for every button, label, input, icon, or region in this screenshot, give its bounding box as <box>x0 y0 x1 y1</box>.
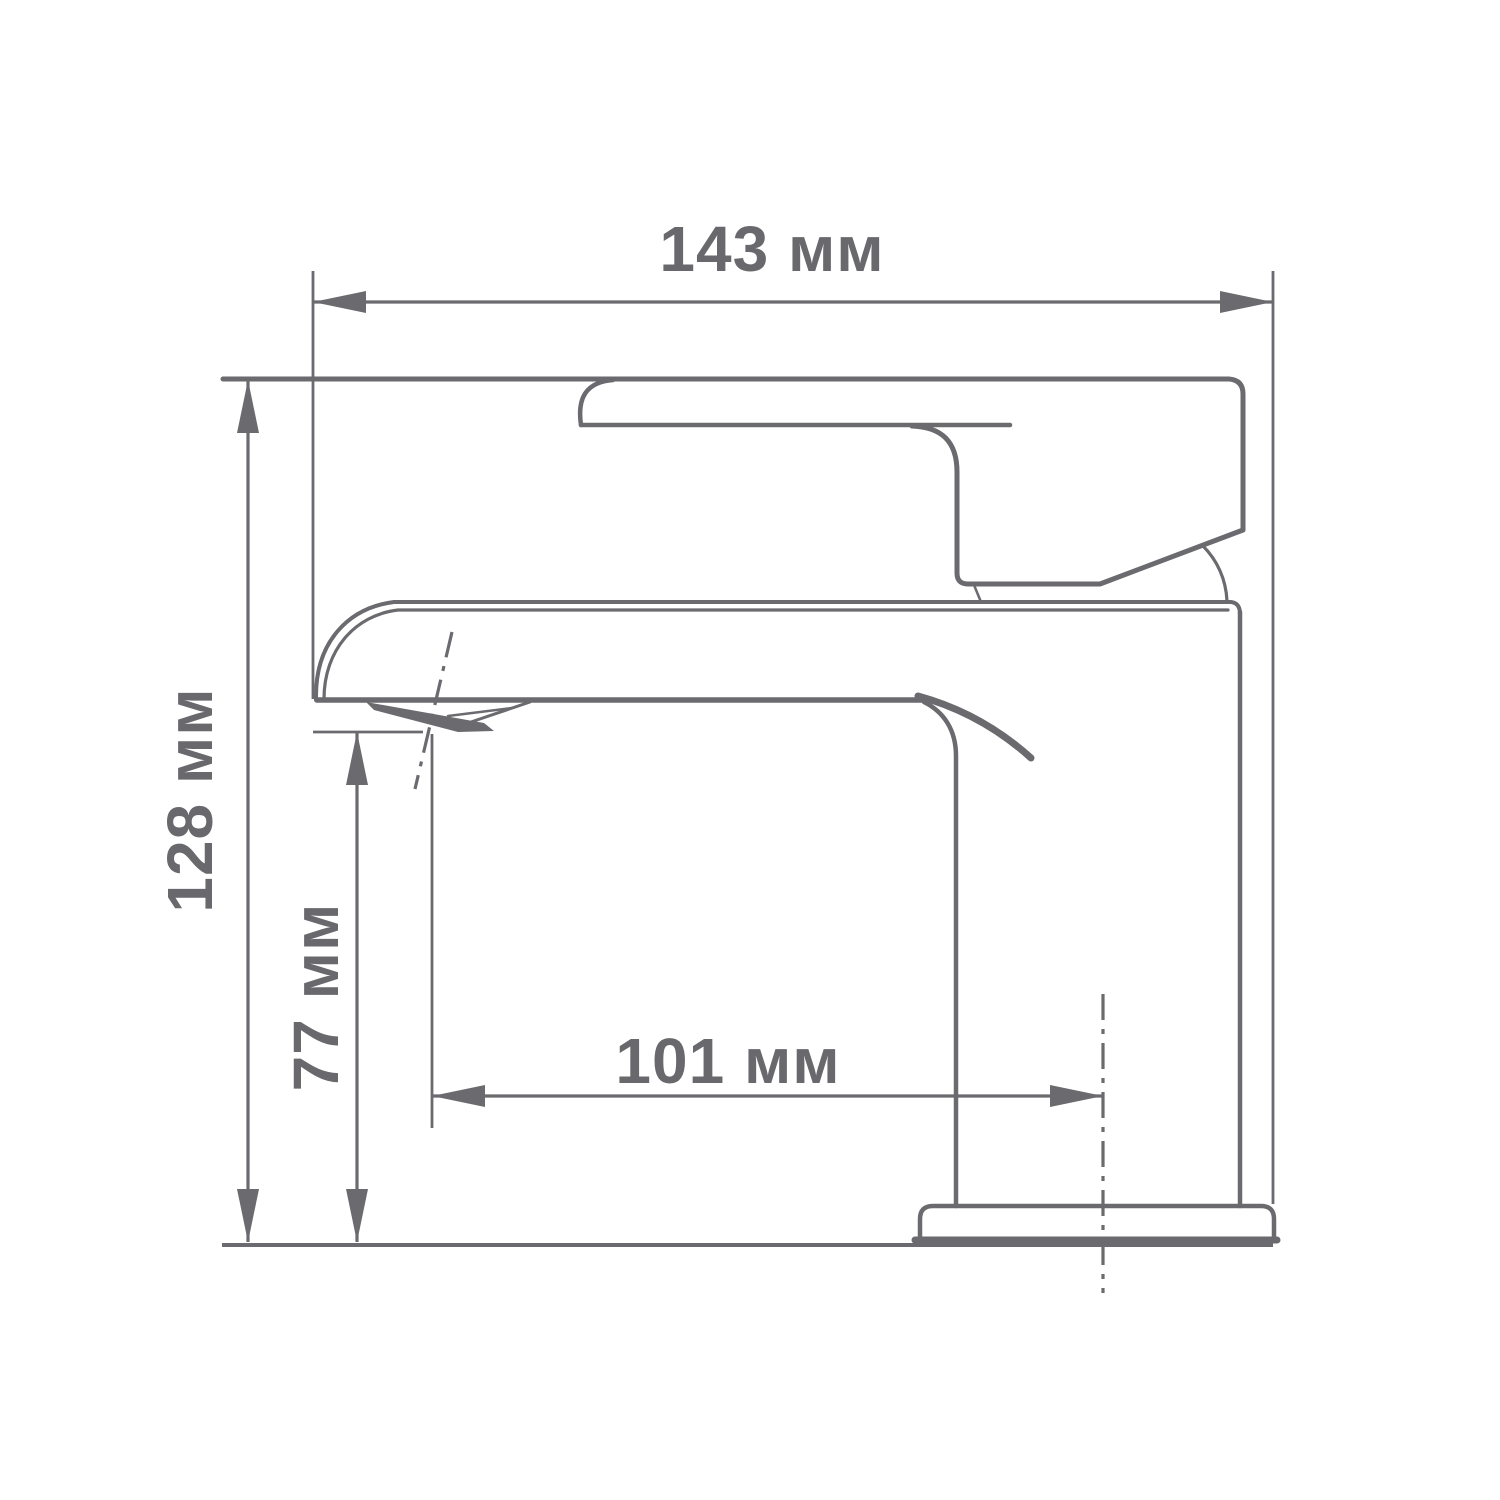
cartridge-dome-arc <box>1203 546 1227 601</box>
faucet-dimension-drawing: 143 мм 128 мм 77 мм 101 мм <box>0 0 1500 1500</box>
dimension-label-77: 77 мм <box>280 903 352 1092</box>
handle-nose-curve <box>580 380 613 425</box>
arrowhead-up <box>346 732 368 785</box>
arrowhead-down <box>346 1189 368 1242</box>
dimension-label-143: 143 мм <box>659 213 884 285</box>
neck-seam-line <box>974 585 981 602</box>
arrowhead-right <box>1220 291 1273 313</box>
arrowhead-left <box>432 1085 485 1107</box>
drawing-canvas: 143 мм 128 мм 77 мм 101 мм <box>0 0 1500 1500</box>
dimension-overall-height: 128 мм <box>154 380 259 1242</box>
arrowhead-left <box>313 291 366 313</box>
handle-block-outline <box>223 379 1243 584</box>
spout-deck-inner <box>324 610 1228 699</box>
dimension-spout-reach: 101 мм <box>432 734 1103 1128</box>
body-left-edge <box>924 702 956 1206</box>
arrowhead-right <box>1050 1085 1103 1107</box>
aerator-centerline <box>415 632 452 789</box>
faucet-outline <box>222 379 1277 1293</box>
spout-deck-outer <box>316 602 1240 700</box>
base-plate-outline <box>920 1206 1274 1241</box>
arrowhead-down <box>237 1189 259 1242</box>
body-front-swoosh <box>918 696 1031 758</box>
arrowhead-up <box>237 380 259 433</box>
dimension-label-128: 128 мм <box>154 687 226 912</box>
dimension-label-101: 101 мм <box>615 1025 840 1097</box>
dimension-spout-height: 77 мм <box>280 732 423 1242</box>
